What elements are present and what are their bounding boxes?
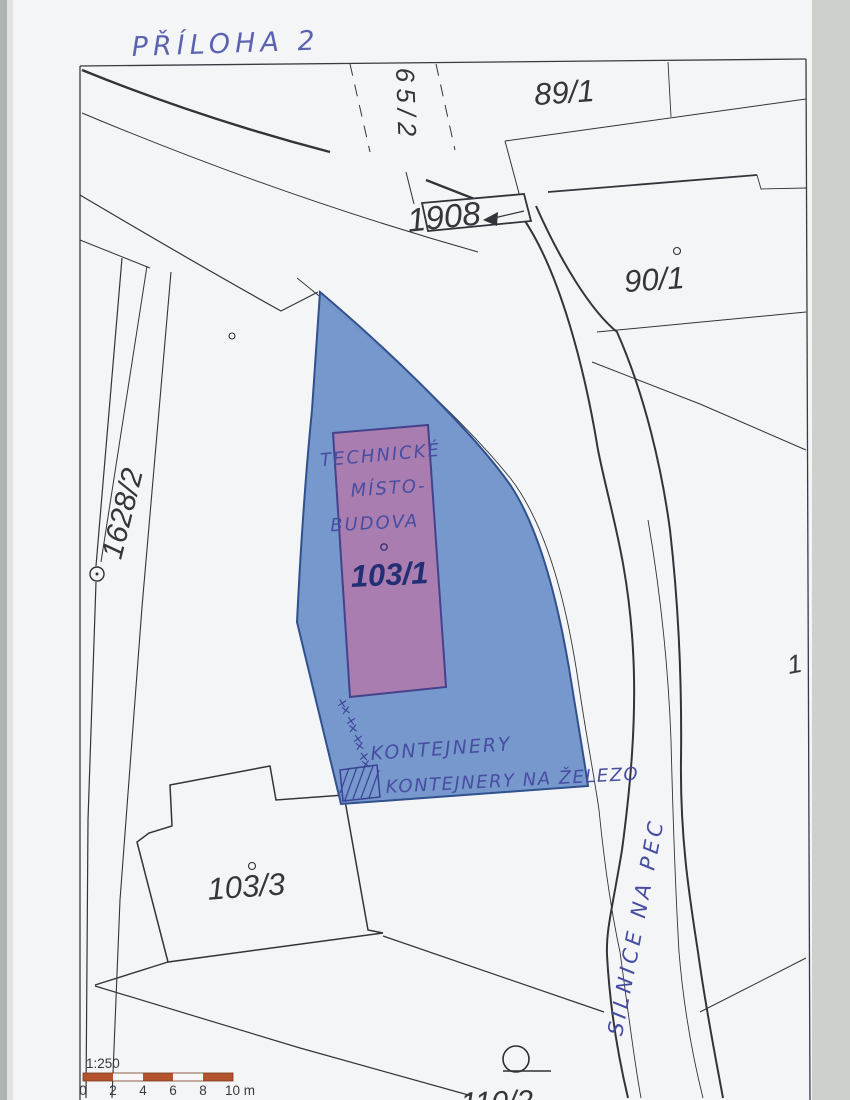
scale-segment <box>173 1073 203 1081</box>
parcel-label-65-2: 65/2 <box>390 67 423 143</box>
monument-dot <box>96 573 99 576</box>
scale-segment <box>113 1073 143 1081</box>
scale-tick: 4 <box>139 1083 147 1098</box>
scale-segment <box>143 1073 173 1081</box>
scale-tick: 8 <box>199 1083 207 1098</box>
scan-edge-left <box>0 0 7 1100</box>
scanned-map-page: × × × × × × × × 89/1 65/2 1908 90/1 1628… <box>0 0 850 1100</box>
scale-tick: 0 <box>79 1083 87 1098</box>
parcel-label-103-3: 103/3 <box>206 866 286 906</box>
road-label-1908: 1908 <box>405 194 483 239</box>
scale-tick: 2 <box>109 1083 117 1098</box>
parcel-label-110-2-clipped: 110/2 <box>460 1085 534 1100</box>
parcel-label-89-1: 89/1 <box>533 73 596 112</box>
scale-tick-10m: 10 m <box>225 1083 255 1098</box>
parcel-label-103-1: 103/1 <box>350 555 429 594</box>
scan-edge-right <box>812 0 850 1100</box>
scale-segment <box>83 1073 113 1081</box>
scale-tick: 6 <box>169 1083 177 1098</box>
cadastral-map: × × × × × × × × 89/1 65/2 1908 90/1 1628… <box>0 0 850 1100</box>
scan-edge-left-fade <box>7 0 13 1100</box>
parcel-label-90-1: 90/1 <box>623 260 686 299</box>
attachment-title-note: PŘÍLOHA 2 <box>131 24 320 63</box>
scale-segment <box>203 1073 233 1081</box>
scale-ratio: 1:250 <box>86 1056 120 1071</box>
